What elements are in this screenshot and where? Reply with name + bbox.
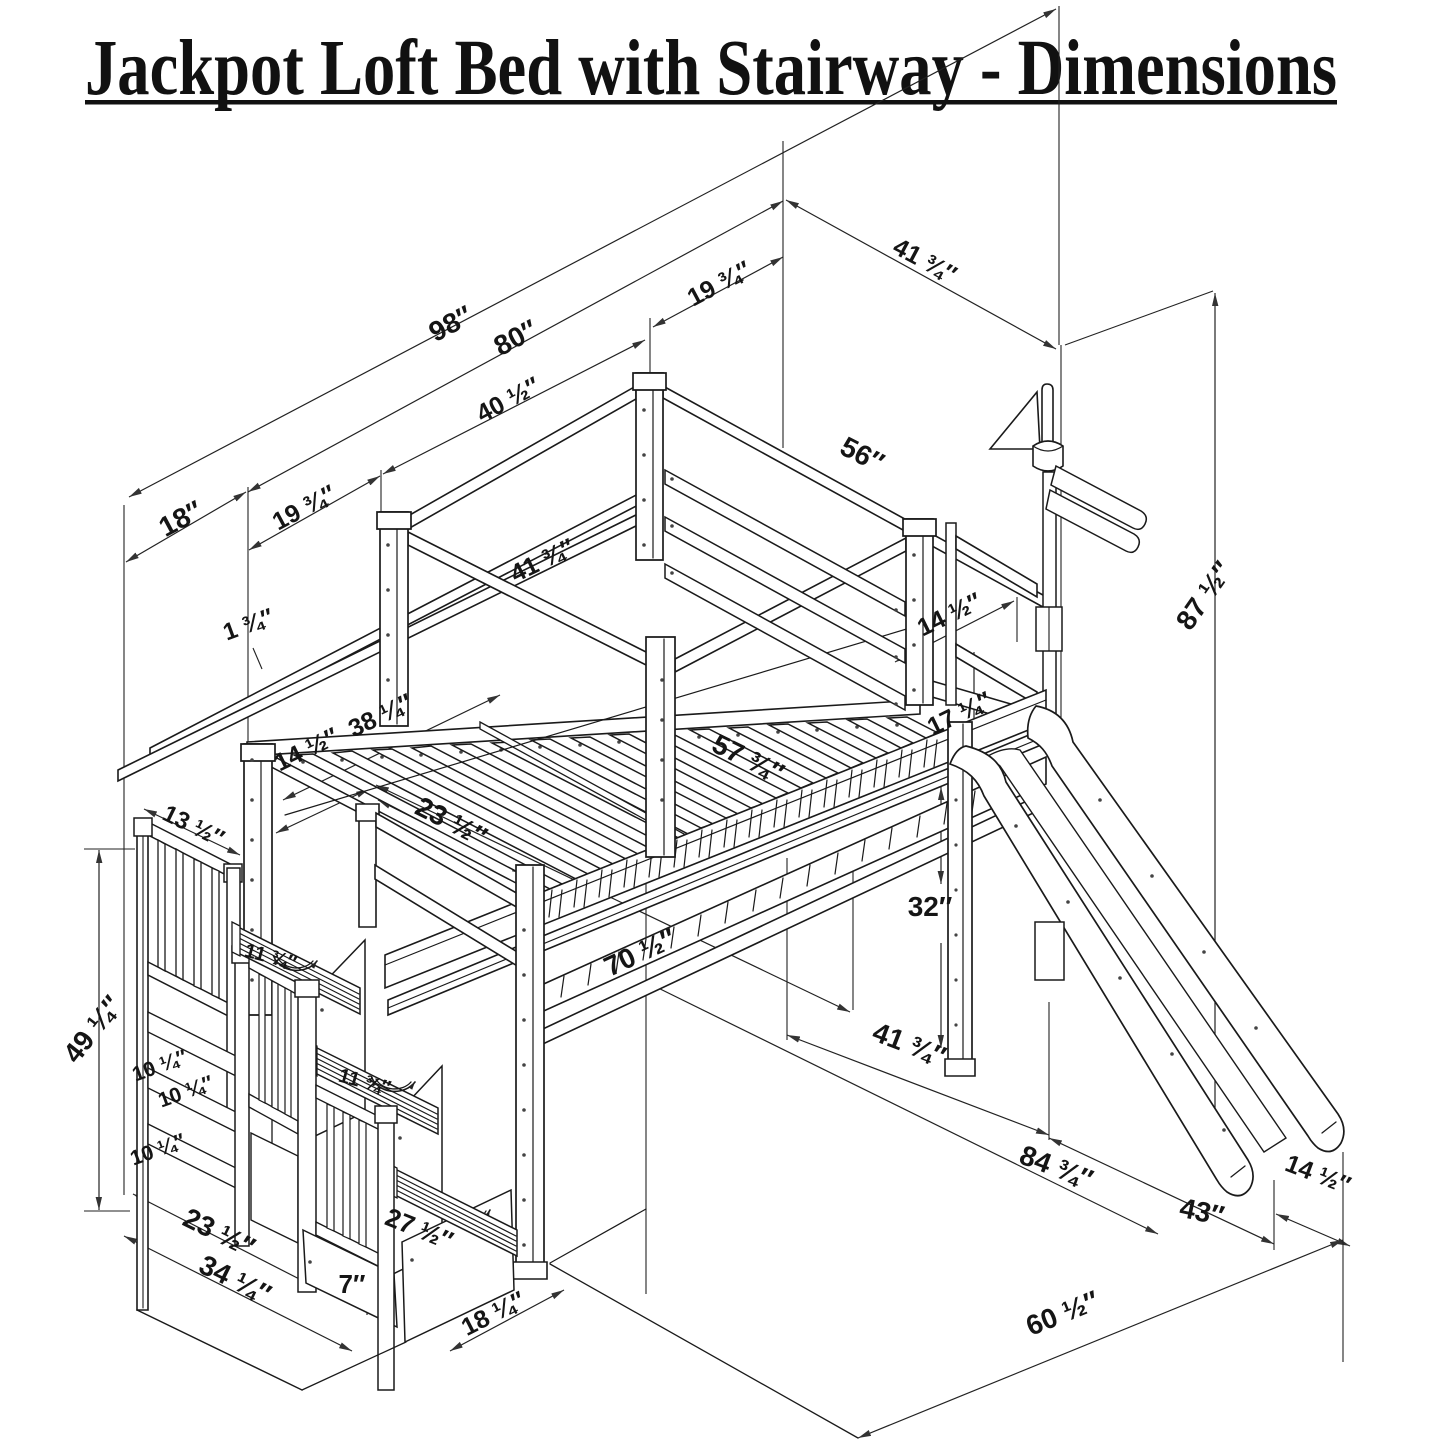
svg-text:32″: 32″ — [908, 891, 953, 922]
svg-text:Jackpot Loft Bed with Stairway: Jackpot Loft Bed with Stairway - Dimensi… — [85, 25, 1337, 112]
svg-text:7″: 7″ — [339, 1269, 366, 1299]
